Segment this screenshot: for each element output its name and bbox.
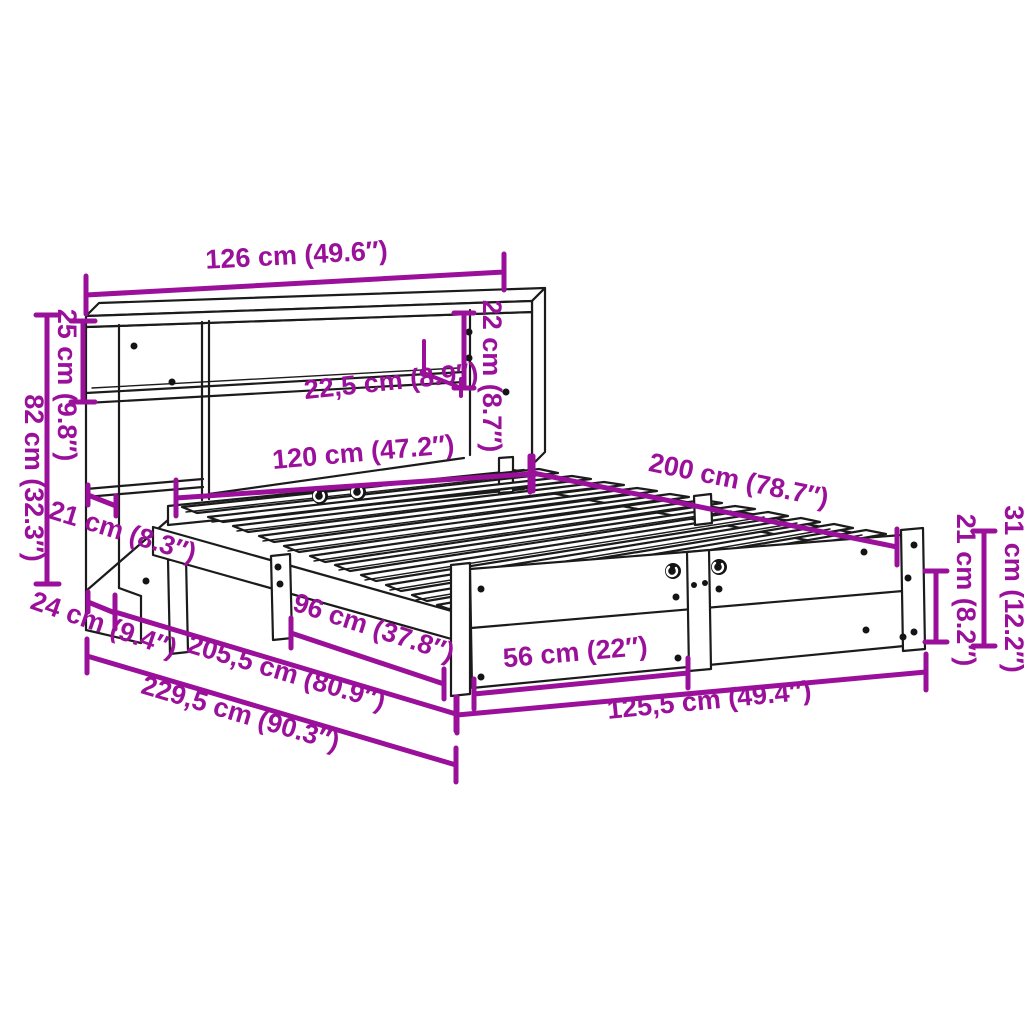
dim-label-foot-leg-height: 31 cm (12.2″) <box>999 505 1024 673</box>
headboard-right-side <box>532 288 545 465</box>
foot-leg-left <box>451 563 470 696</box>
dim-label-headboard-height: 82 cm (32.3″) <box>19 394 49 562</box>
diagram-canvas: 126 cm (49.6″) 25 cm (9.8″) 82 cm (32.3″… <box>0 0 1024 1024</box>
dimension-foot-rail-height: 21 cm (8.2″) <box>925 514 981 667</box>
foot-center-post <box>687 550 711 671</box>
dim-label-shelf-opening-height: 22 cm (8.7″) <box>477 300 507 453</box>
dim-label-frame-width: 125,5 cm (49.4″) <box>606 675 813 725</box>
dim-label-foot-rail-height: 21 cm (8.2″) <box>951 514 981 667</box>
dim-label-headboard-width: 126 cm (49.6″) <box>205 235 389 275</box>
bed-dimension-diagram: 126 cm (49.6″) 25 cm (9.8″) 82 cm (32.3″… <box>0 0 1024 1024</box>
dim-label-headboard-shelf-height: 25 cm (9.8″) <box>52 309 82 462</box>
